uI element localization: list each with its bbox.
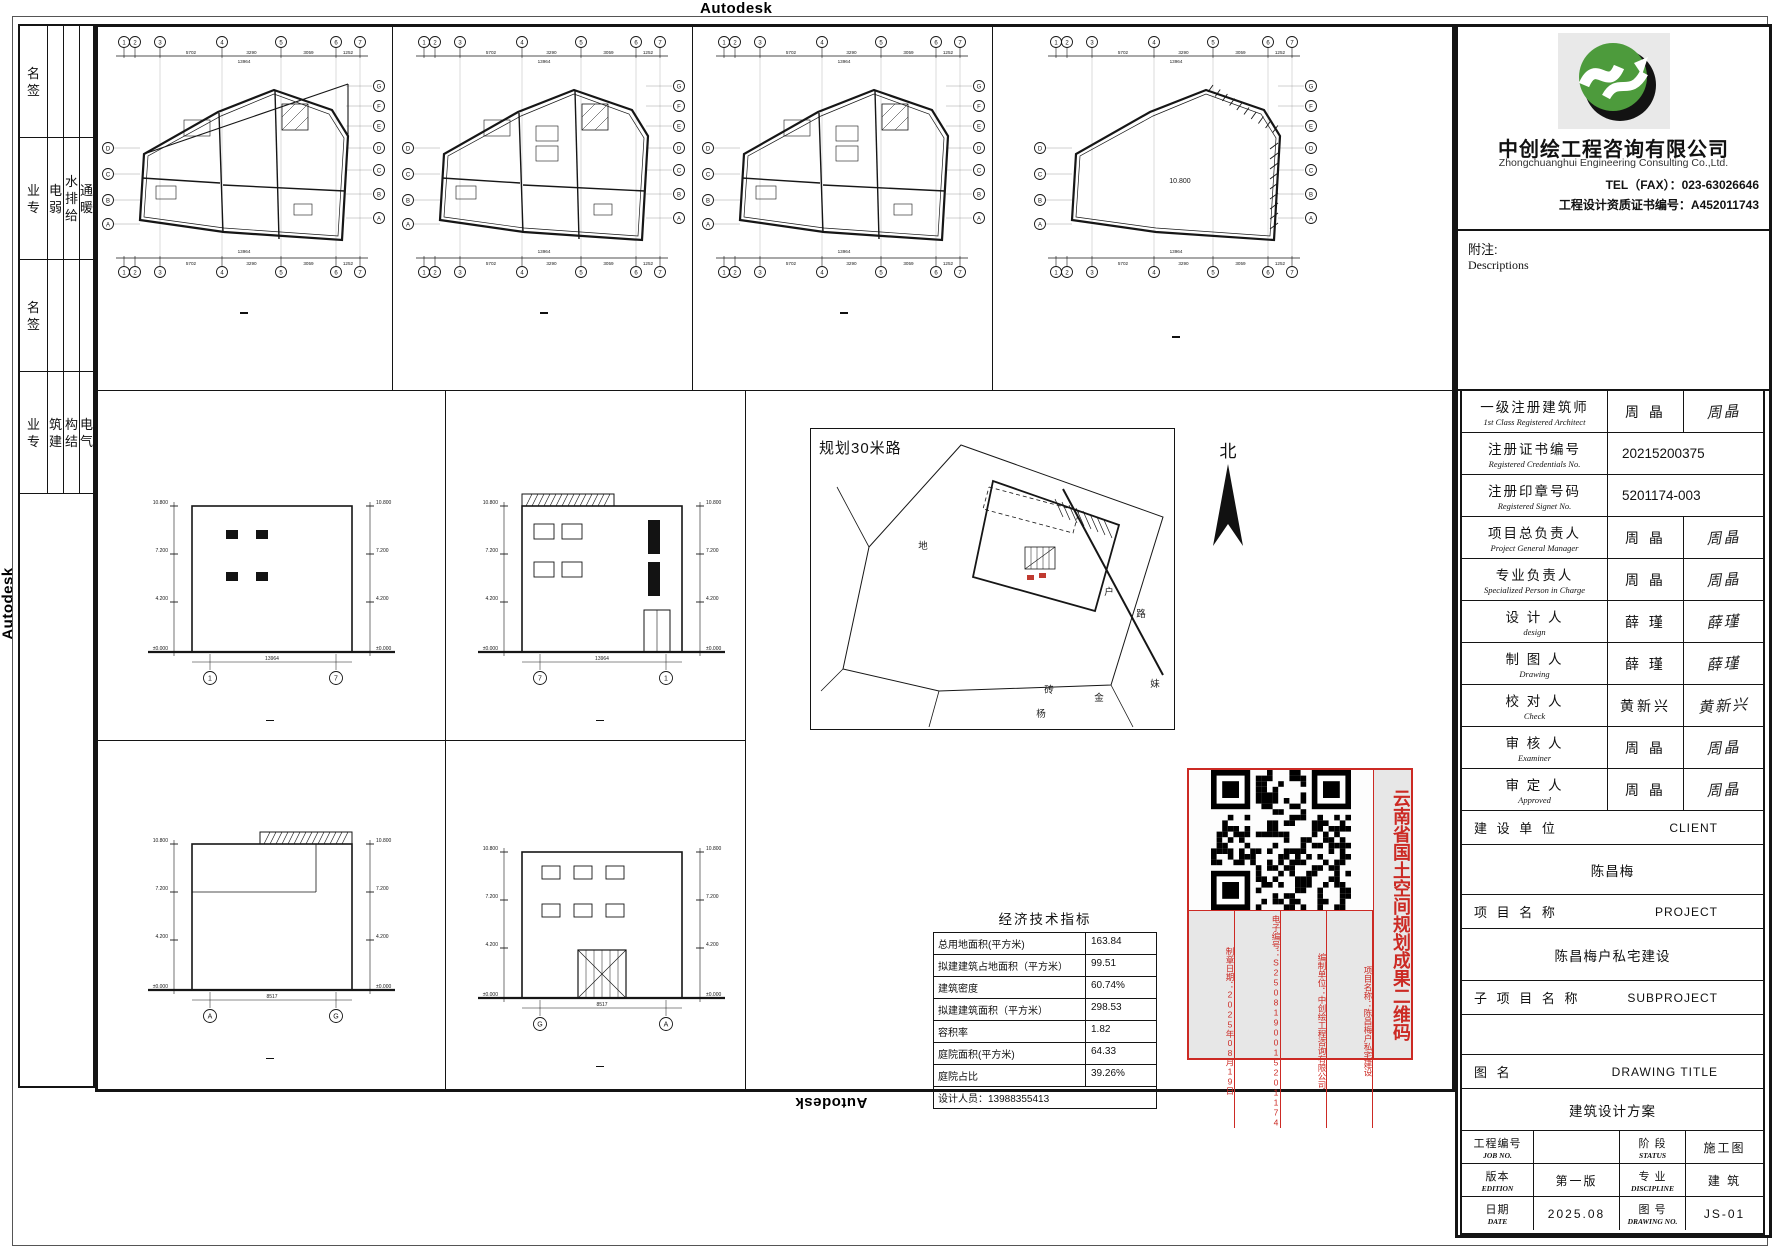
svg-text:13964: 13964 (838, 249, 851, 254)
svg-text:7.200: 7.200 (376, 886, 389, 892)
strip-cell: 通暖 (80, 138, 93, 259)
svg-text:C: C (1038, 172, 1043, 178)
svg-text:B: B (1309, 192, 1313, 198)
svg-text:A: A (706, 222, 710, 228)
econ-rows: 总用地面积(平方米)163.84拟建建筑占地面积（平方米）99.51建筑密度60… (933, 932, 1157, 1109)
svg-text:4.200: 4.200 (376, 596, 389, 602)
svg-text:3059: 3059 (603, 50, 614, 55)
svg-text:3059: 3059 (303, 261, 314, 266)
personnel-table: 一级注册建筑师1st Class Registered Architect周 晶… (1462, 391, 1763, 811)
econ-row: 总用地面积(平方米)163.84 (933, 932, 1157, 955)
person-name: 周 晶 (1608, 769, 1684, 810)
svg-text:7.200: 7.200 (155, 886, 168, 892)
section-header: 建 设 单 位CLIENT (1462, 811, 1763, 845)
svg-text:±0.000: ±0.000 (706, 646, 721, 652)
strip-cell: 名签 (20, 260, 48, 371)
svg-text:1252: 1252 (943, 50, 954, 55)
section-value: 建筑设计方案 (1462, 1089, 1763, 1131)
planning-qr-stamp: 制章日期：2025年08月19日电子编号：S2508190015201174编制… (1187, 768, 1413, 1060)
svg-text:13964: 13964 (838, 59, 851, 64)
svg-text:A: A (1309, 216, 1313, 222)
personnel-row: 制 图 人Drawing薛 瑾薛瑾 (1462, 643, 1763, 685)
grid-value: 施工图 (1686, 1131, 1763, 1163)
svg-text:B: B (406, 198, 410, 204)
svg-text:1252: 1252 (343, 261, 354, 266)
person-name: 薛 瑾 (1608, 601, 1684, 642)
grid-value (1534, 1131, 1620, 1163)
plan-title (540, 293, 548, 314)
svg-text:C: C (706, 172, 711, 178)
elevation-drawing: 10.80010.8007.2007.2004.2004.200±0.000±0… (120, 462, 420, 694)
svg-text:E: E (1309, 124, 1313, 130)
svg-text:4.200: 4.200 (485, 596, 498, 602)
economic-indicators: 经济技术指标 总用地面积(平方米)163.84拟建建筑占地面积（平方米）99.5… (933, 908, 1157, 1109)
svg-text:1252: 1252 (643, 50, 654, 55)
strip-section: 名签 (20, 260, 93, 372)
svg-text:F: F (977, 104, 981, 110)
svg-text:F: F (377, 104, 381, 110)
countersign-strip: 名签业专电弱水排给通暖名签业专筑建构结电气 (18, 24, 95, 1088)
strip-cell: 电弱 (48, 138, 64, 259)
north-arrow-icon (1205, 462, 1251, 550)
svg-text:路: 路 (1136, 608, 1146, 620)
strip-section: 业专电弱水排给通暖 (20, 138, 93, 260)
grid-label: 阶 段STATUS (1620, 1131, 1686, 1163)
svg-text:C: C (406, 172, 411, 178)
svg-text:3290: 3290 (546, 50, 557, 55)
svg-text:D: D (1038, 146, 1043, 152)
grid-row: 版本EDITION第一版专 业DISCIPLINE建 筑 (1462, 1164, 1763, 1197)
plan-title (240, 293, 248, 314)
svg-text:±0.000: ±0.000 (376, 984, 391, 990)
person-name: 周 晶 (1608, 517, 1684, 558)
floor-plan-2: 1122334455667757025702329032903059305912… (398, 28, 690, 314)
svg-text:D: D (977, 146, 982, 152)
grid-row: 日期DATE2025.08图 号DRAWING NO.JS-01 (1462, 1197, 1763, 1230)
strip-cell: 名签 (20, 26, 48, 137)
svg-text:3059: 3059 (303, 50, 314, 55)
svg-text:13964: 13964 (595, 656, 609, 662)
svg-text:E: E (377, 124, 381, 130)
svg-text:G: G (1309, 84, 1314, 90)
grid-label: 日期DATE (1462, 1197, 1534, 1230)
svg-text:地: 地 (918, 540, 928, 552)
title-block-table: 一级注册建筑师1st Class Registered Architect周 晶… (1460, 389, 1765, 1235)
north-arrow: 北 (1205, 437, 1251, 555)
svg-text:3290: 3290 (846, 261, 857, 266)
partition (992, 27, 993, 390)
svg-text:10.800: 10.800 (153, 500, 169, 506)
company-cert: 工程设计资质证书编号：A452011743 (1458, 196, 1769, 213)
strip-cell (64, 26, 80, 137)
site-drawing: 地砖杨金妹户路 (811, 429, 1176, 731)
watermark-top: Autodesk (700, 0, 772, 17)
north-label: 北 (1205, 437, 1251, 462)
svg-text:4.200: 4.200 (706, 596, 719, 602)
elevation-1-7: 10.80010.8007.2007.2004.2004.200±0.000±0… (120, 462, 420, 721)
svg-text:4.200: 4.200 (706, 942, 719, 948)
strip-cell: 电气 (80, 372, 93, 493)
svg-text:4.200: 4.200 (376, 934, 389, 940)
floor-plan-3: 1122334455667757025702329032903059305912… (698, 28, 990, 314)
svg-text:B: B (706, 198, 710, 204)
section-value: 陈昌梅户私宅建设 (1462, 929, 1763, 981)
strip-cell: 业专 (20, 372, 48, 493)
econ-title: 经济技术指标 (933, 908, 1157, 928)
credential-value: 20215200375 (1608, 433, 1763, 474)
svg-text:5702: 5702 (486, 261, 497, 266)
svg-text:砖: 砖 (1044, 684, 1054, 696)
svg-text:±0.000: ±0.000 (483, 646, 498, 652)
econ-row: 建筑密度60.74% (933, 977, 1157, 999)
svg-text:7.200: 7.200 (706, 548, 719, 554)
stamp-column: 电子编号：S2508190015201174 (1235, 911, 1281, 1128)
notes-label-en: Descriptions (1468, 258, 1759, 273)
role-label: 注册印章号码Registered Signet No. (1462, 475, 1608, 516)
role-label: 一级注册建筑师1st Class Registered Architect (1462, 391, 1608, 432)
elevation-title (266, 1039, 274, 1059)
svg-text:A: A (1038, 222, 1042, 228)
strip-section: 名签 (20, 26, 93, 138)
section-value (1462, 1015, 1763, 1055)
company-block: 中创绘工程咨询有限公司 Zhongchuanghui Engineering C… (1458, 27, 1769, 231)
stamp-columns: 制章日期：2025年08月19日电子编号：S2508190015201174编制… (1189, 911, 1373, 1128)
svg-text:10.800: 10.800 (153, 838, 169, 844)
svg-text:B: B (1038, 198, 1042, 204)
partition (692, 27, 693, 390)
svg-text:7: 7 (538, 676, 542, 683)
svg-text:5702: 5702 (1118, 50, 1129, 55)
svg-text:4.200: 4.200 (155, 934, 168, 940)
grid-value: 建 筑 (1686, 1164, 1763, 1196)
company-name-en: Zhongchuanghui Engineering Consulting Co… (1458, 157, 1769, 169)
svg-text:D: D (677, 146, 682, 152)
signature: 薛瑾 (1683, 640, 1765, 686)
personnel-row: 审 定 人Approved周 晶周晶 (1462, 769, 1763, 811)
signature: 薛瑾 (1683, 598, 1765, 644)
svg-text:13964: 13964 (238, 59, 251, 64)
svg-text:13964: 13964 (1170, 249, 1183, 254)
section-value: 陈昌梅 (1462, 845, 1763, 895)
bottom-grid: 工程编号JOB NO.阶 段STATUS施工图版本EDITION第一版专 业DI… (1462, 1131, 1763, 1230)
plan-drawing: 1122334455667757025702329032903059305912… (1030, 28, 1322, 286)
svg-text:3059: 3059 (603, 261, 614, 266)
svg-text:1252: 1252 (943, 261, 954, 266)
svg-text:4.200: 4.200 (155, 596, 168, 602)
svg-text:C: C (1309, 168, 1314, 174)
svg-text:3290: 3290 (246, 50, 257, 55)
partition (392, 27, 393, 390)
econ-row: 拟建建筑占地面积（平方米）99.51 (933, 955, 1157, 977)
plan-drawing: 1122334455667757025702329032903059305912… (98, 28, 390, 286)
svg-text:5702: 5702 (786, 50, 797, 55)
strip-section: 业专筑建构结电气 (20, 372, 93, 494)
svg-text:±0.000: ±0.000 (483, 992, 498, 998)
stamp-left: 制章日期：2025年08月19日电子编号：S2508190015201174编制… (1189, 770, 1373, 1058)
svg-text:B: B (377, 192, 381, 198)
svg-text:1252: 1252 (343, 50, 354, 55)
svg-text:G: G (377, 84, 382, 90)
signature: 周晶 (1683, 514, 1765, 560)
stamp-column: 编制单位：中创绘工程咨询有限公司 (1281, 911, 1327, 1128)
role-label: 审 定 人Approved (1462, 769, 1608, 810)
svg-text:3059: 3059 (1235, 261, 1246, 266)
section-header: 项 目 名 称PROJECT (1462, 895, 1763, 929)
role-label: 注册证书编号Registered Credentials No. (1462, 433, 1608, 474)
svg-text:金: 金 (1094, 692, 1104, 704)
svg-text:D: D (106, 146, 111, 152)
role-label: 项目总负责人Project General Manager (1462, 517, 1608, 558)
svg-text:8517: 8517 (596, 1002, 607, 1008)
floor-plan-1: 1122334455667757025702329032903059305912… (98, 28, 390, 314)
person-name: 薛 瑾 (1608, 643, 1684, 684)
strip-cell (48, 260, 64, 371)
elevation-title (596, 701, 604, 721)
elevation-7-1: 10.80010.8007.2007.2004.2004.200±0.000±0… (450, 462, 750, 721)
stamp-column: 项目名称：陈昌梅户私宅建设 (1327, 911, 1373, 1128)
person-name: 黄新兴 (1608, 685, 1684, 726)
qr-code (1189, 770, 1373, 911)
site-plan: 规划30米路 地砖杨金妹户路 (810, 428, 1175, 730)
signature: 周晶 (1683, 556, 1765, 602)
svg-text:B: B (977, 192, 981, 198)
grid-label: 版本EDITION (1462, 1164, 1534, 1196)
svg-text:7: 7 (334, 676, 338, 683)
econ-row: 庭院面积(平方米)64.33 (933, 1043, 1157, 1065)
strip-cell: 构结 (64, 372, 80, 493)
svg-text:A: A (406, 222, 410, 228)
elevation-g-a: 10.80010.8007.2007.2004.2004.200±0.000±0… (450, 808, 750, 1067)
svg-text:7.200: 7.200 (155, 548, 168, 554)
svg-text:1252: 1252 (1275, 50, 1286, 55)
svg-text:杨: 杨 (1036, 708, 1046, 720)
role-label: 设 计 人design (1462, 601, 1608, 642)
signature: 黄新兴 (1683, 682, 1765, 728)
grid-value: JS-01 (1686, 1197, 1763, 1230)
stamp-side-text: 云南省国土空间规划成果二维码 (1373, 770, 1410, 1058)
svg-text:±0.000: ±0.000 (706, 992, 721, 998)
svg-text:F: F (1309, 104, 1313, 110)
svg-text:13964: 13964 (238, 249, 251, 254)
svg-text:A: A (977, 216, 981, 222)
econ-footer: 设计人员：13988355413 (933, 1087, 1157, 1109)
svg-text:户: 户 (1104, 586, 1114, 598)
strip-cell: 业专 (20, 138, 48, 259)
svg-text:3290: 3290 (846, 50, 857, 55)
svg-text:10.800: 10.800 (483, 500, 499, 506)
svg-text:C: C (977, 168, 982, 174)
svg-text:3290: 3290 (246, 261, 257, 266)
grid-label: 图 号DRAWING NO. (1620, 1197, 1686, 1230)
svg-text:10.800: 10.800 (483, 846, 499, 852)
personnel-row: 项目总负责人Project General Manager周 晶周晶 (1462, 517, 1763, 559)
svg-text:7.200: 7.200 (485, 548, 498, 554)
svg-text:A: A (677, 216, 681, 222)
grid-row: 工程编号JOB NO.阶 段STATUS施工图 (1462, 1131, 1763, 1164)
svg-text:E: E (677, 124, 681, 130)
partition (98, 390, 1452, 391)
strip-cell (80, 260, 93, 371)
grid-value: 2025.08 (1534, 1197, 1620, 1230)
stamp-column: 制章日期：2025年08月19日 (1189, 911, 1235, 1128)
svg-text:A: A (377, 216, 381, 222)
role-label: 审 核 人Examiner (1462, 727, 1608, 768)
svg-text:E: E (977, 124, 981, 130)
elevation-drawing: 10.80010.8007.2007.2004.2004.200±0.000±0… (450, 462, 750, 694)
svg-text:7.200: 7.200 (706, 894, 719, 900)
svg-text:3290: 3290 (1178, 50, 1189, 55)
section-header: 图 名DRAWING TITLE (1462, 1055, 1763, 1089)
elevation-drawing: 10.80010.8007.2007.2004.2004.200±0.000±0… (450, 808, 750, 1040)
svg-text:10.800: 10.800 (706, 500, 722, 506)
section-header: 子 项 目 名 称SUBPROJECT (1462, 981, 1763, 1015)
strip-cell (80, 26, 93, 137)
svg-text:13964: 13964 (538, 59, 551, 64)
svg-text:C: C (677, 168, 682, 174)
person-name: 周 晶 (1608, 391, 1684, 432)
notes-block: 附注: Descriptions (1458, 231, 1769, 391)
svg-text:5702: 5702 (186, 50, 197, 55)
roof-plan: 1122334455667757025702329032903059305912… (1030, 28, 1322, 338)
svg-text:1: 1 (208, 676, 212, 683)
svg-text:B: B (106, 198, 110, 204)
svg-text:F: F (677, 104, 681, 110)
svg-text:4.200: 4.200 (485, 942, 498, 948)
personnel-row: 注册证书编号Registered Credentials No.20215200… (1462, 433, 1763, 475)
svg-text:5702: 5702 (186, 261, 197, 266)
svg-text:G: G (537, 1022, 542, 1029)
plan-title (1172, 317, 1180, 338)
svg-text:D: D (1309, 146, 1314, 152)
svg-text:C: C (106, 172, 111, 178)
svg-text:10.800: 10.800 (376, 838, 392, 844)
personnel-row: 审 核 人Examiner周 晶周晶 (1462, 727, 1763, 769)
personnel-row: 一级注册建筑师1st Class Registered Architect周 晶… (1462, 391, 1763, 433)
role-label: 校 对 人Check (1462, 685, 1608, 726)
econ-row: 容积率1.82 (933, 1021, 1157, 1043)
signature: 周晶 (1683, 388, 1765, 434)
strip-cell (48, 26, 64, 137)
partition (98, 740, 745, 741)
elevation-title (266, 701, 274, 721)
title-block-panel: 中创绘工程咨询有限公司 Zhongchuanghui Engineering C… (1455, 24, 1772, 1238)
credential-value: 5201174-003 (1608, 475, 1763, 516)
svg-text:13964: 13964 (538, 249, 551, 254)
svg-text:13964: 13964 (265, 656, 279, 662)
plan-drawing: 1122334455667757025702329032903059305912… (398, 28, 690, 286)
personnel-row: 专业负责人Specialized Person in Charge周 晶周晶 (1462, 559, 1763, 601)
svg-text:1252: 1252 (1275, 261, 1286, 266)
svg-text:G: G (333, 1014, 338, 1021)
svg-text:3059: 3059 (903, 50, 914, 55)
svg-text:5702: 5702 (1118, 261, 1129, 266)
elevation-title (596, 1047, 604, 1067)
plan-title (840, 293, 848, 314)
svg-text:A: A (106, 222, 110, 228)
svg-text:5702: 5702 (786, 261, 797, 266)
svg-text:±0.000: ±0.000 (153, 984, 168, 990)
svg-text:B: B (677, 192, 681, 198)
svg-text:10.800: 10.800 (706, 846, 722, 852)
person-name: 周 晶 (1608, 727, 1684, 768)
grid-value: 第一版 (1534, 1164, 1620, 1196)
signature: 周晶 (1683, 724, 1765, 770)
signature: 周晶 (1683, 766, 1765, 812)
grid-label: 工程编号JOB NO. (1462, 1131, 1534, 1163)
plan-drawing: 1122334455667757025702329032903059305912… (698, 28, 990, 286)
elevation-a-g: 10.80010.8007.2007.2004.2004.200±0.000±0… (120, 800, 420, 1059)
strip-cell (64, 260, 80, 371)
svg-text:10.800: 10.800 (1169, 178, 1191, 185)
svg-text:10.800: 10.800 (376, 500, 392, 506)
grid-label: 专 业DISCIPLINE (1620, 1164, 1686, 1196)
company-logo (1556, 33, 1672, 136)
person-name: 周 晶 (1608, 559, 1684, 600)
svg-text:妹: 妹 (1150, 678, 1160, 690)
svg-text:5702: 5702 (486, 50, 497, 55)
svg-text:D: D (377, 146, 382, 152)
notes-label: 附注: (1468, 239, 1759, 258)
svg-text:7.200: 7.200 (485, 894, 498, 900)
svg-text:1: 1 (664, 676, 668, 683)
svg-text:3059: 3059 (903, 261, 914, 266)
elevation-drawing: 10.80010.8007.2007.2004.2004.200±0.000±0… (120, 800, 420, 1032)
svg-text:13964: 13964 (1170, 59, 1183, 64)
strip-cell: 水排给 (64, 138, 80, 259)
svg-text:8517: 8517 (266, 994, 277, 1000)
company-tel: TEL（FAX）：023-63026646 (1458, 176, 1769, 193)
project-rows: 建 设 单 位CLIENT陈昌梅项 目 名 称PROJECT陈昌梅户私宅建设子 … (1462, 811, 1763, 1131)
svg-text:A: A (208, 1014, 213, 1021)
role-label: 专业负责人Specialized Person in Charge (1462, 559, 1608, 600)
personnel-row: 校 对 人Check黄新兴黄新兴 (1462, 685, 1763, 727)
svg-text:D: D (406, 146, 411, 152)
strip-cell: 筑建 (48, 372, 64, 493)
svg-text:3290: 3290 (1178, 261, 1189, 266)
svg-text:3290: 3290 (546, 261, 557, 266)
personnel-row: 注册印章号码Registered Signet No.5201174-003 (1462, 475, 1763, 517)
role-label: 制 图 人Drawing (1462, 643, 1608, 684)
econ-row: 拟建建筑面积（平方米）298.53 (933, 999, 1157, 1021)
svg-text:1252: 1252 (643, 261, 654, 266)
econ-row: 庭院占比39.26% (933, 1065, 1157, 1087)
svg-text:7.200: 7.200 (376, 548, 389, 554)
svg-text:D: D (706, 146, 711, 152)
svg-text:±0.000: ±0.000 (153, 646, 168, 652)
svg-text:G: G (677, 84, 682, 90)
svg-text:A: A (664, 1022, 669, 1029)
personnel-row: 设 计 人design薛 瑾薛瑾 (1462, 601, 1763, 643)
svg-text:G: G (977, 84, 982, 90)
svg-text:C: C (377, 168, 382, 174)
svg-text:3059: 3059 (1235, 50, 1246, 55)
svg-text:±0.000: ±0.000 (376, 646, 391, 652)
